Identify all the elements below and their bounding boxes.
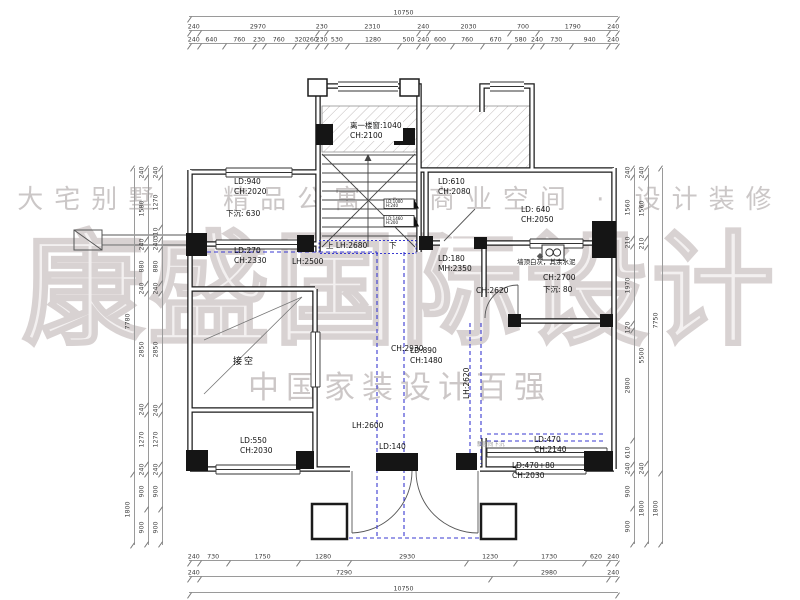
label-bath-ch2: CH:2620	[476, 286, 509, 296]
label-baywindow-note: 飘窗向下沉	[477, 442, 505, 449]
dim-right-overall: 77501800	[650, 168, 663, 544]
label-bath-ch: CH:2700	[543, 273, 576, 283]
label-room-topright: LD:610 CH:2080	[438, 177, 471, 197]
dim-right-inner: 240156021019701202800610240900900	[622, 168, 635, 544]
label-hall-ch: CH:2930	[391, 344, 424, 354]
dim-top-major: 2402970230231024020307001790240	[189, 19, 618, 31]
label-void-room: 接空	[233, 356, 255, 368]
label-window-right: LD: 640 CH:2050	[521, 205, 554, 225]
label-door-topright: LD:180 MH:2350	[438, 254, 472, 274]
label-door-bottom: LD:140	[379, 442, 406, 452]
porch-columns	[312, 504, 516, 539]
dim-right-middle: 240156021055002401800	[636, 168, 649, 544]
dim-left-inner: 240127031024088024028502401270240900900	[150, 168, 163, 545]
label-band: LD:270 CH:2330	[234, 246, 267, 266]
dim-bottom-major: 24072902980240	[189, 565, 618, 577]
label-window-bottomleft: LD:550 CH:2030	[240, 436, 273, 456]
label-stair-down: 下	[389, 241, 397, 251]
label-stair-up: 上 LH:2680	[326, 241, 367, 251]
label-stair-window: 离一楼窗:1040 CH:2100	[349, 121, 403, 141]
label-stair-tag1: LD:1000 H:240	[386, 200, 403, 209]
dim-top-detail: 2406407602307603202602305301280500240600…	[189, 32, 618, 44]
floor-plan-page: 大宅别墅 · 精品公寓 · 商业空间 · 设计装修 康盛国际设计 中国家装设计百…	[0, 0, 800, 600]
dim-left-overall: 77801800	[122, 168, 135, 545]
dim-top-overall: 10750	[189, 5, 618, 17]
floor-plan-svg	[0, 0, 800, 600]
label-room-topleft-sunken: 下沉: 630	[226, 209, 260, 219]
label-bath-sunken: 下沉: 80	[543, 285, 572, 295]
dim-left-outer: 240158024088024028502401270240900900	[136, 168, 149, 545]
label-bath-note: 墙顶白灰，其余水泥	[517, 258, 576, 267]
label-lh2600: LH:2600	[352, 421, 383, 431]
label-stair-tag2: LD:1460 H:200	[386, 217, 403, 226]
dim-bottom-detail: 24073017501280293012301730620240	[189, 549, 618, 561]
label-lh2620: LH:2620	[462, 368, 472, 399]
dim-bottom-overall: 10750	[189, 581, 618, 593]
label-window-bottomright2: LD:470+80 CH:2030	[512, 461, 555, 481]
void-room-lines	[204, 297, 302, 394]
label-lh2500: LH:2500	[292, 257, 323, 267]
label-room-topleft: LD:940 CH:2020	[234, 177, 267, 197]
label-window-bottomright1: LD:470 CH:2140	[534, 435, 567, 455]
